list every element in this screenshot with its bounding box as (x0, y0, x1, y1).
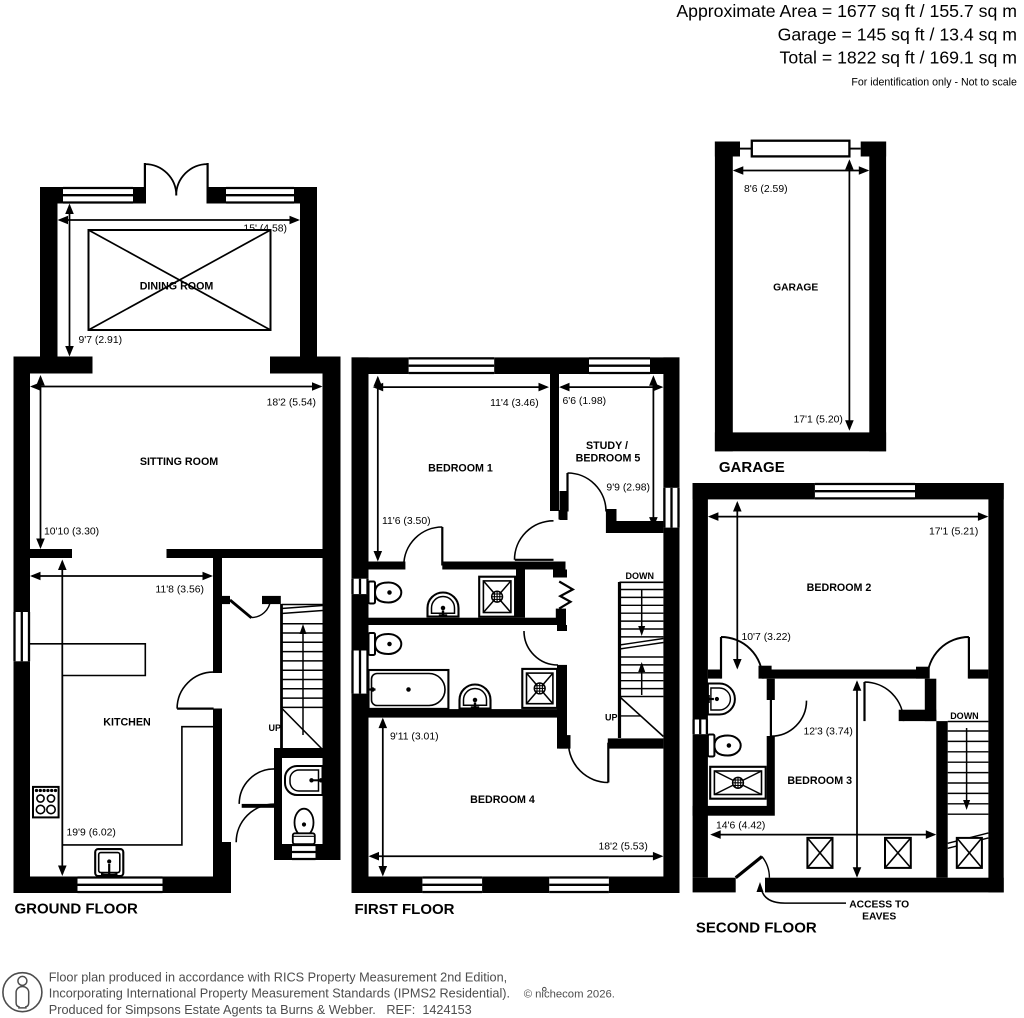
svg-text:14'6 (4.42): 14'6 (4.42) (716, 821, 765, 832)
svg-text:Approximate Area = 1677 sq ft: Approximate Area = 1677 sq ft / 155.7 sq… (676, 1, 1017, 21)
svg-text:BEDROOM 2: BEDROOM 2 (807, 582, 872, 594)
svg-text:STUDY /: STUDY / (586, 440, 628, 452)
svg-text:DOWN: DOWN (950, 711, 979, 721)
svg-text:9'9 (2.98): 9'9 (2.98) (606, 483, 650, 494)
svg-text:8'6 (2.59): 8'6 (2.59) (744, 184, 788, 195)
svg-text:FIRST FLOOR: FIRST FLOOR (355, 901, 455, 918)
svg-text:Garage = 145 sq ft / 13.4 sq m: Garage = 145 sq ft / 13.4 sq m (778, 24, 1017, 44)
svg-text:ACCESS TO: ACCESS TO (849, 900, 909, 911)
svg-text:12'3 (3.74): 12'3 (3.74) (804, 727, 853, 738)
svg-text:11'6 (3.50): 11'6 (3.50) (382, 516, 431, 527)
svg-text:For identification only - Not: For identification only - Not to scale (851, 77, 1017, 89)
svg-text:Produced for Simpsons Estate A: Produced for Simpsons Estate Agents ta B… (49, 1003, 472, 1017)
svg-text:BEDROOM 1: BEDROOM 1 (428, 463, 493, 475)
svg-text:19'9 (6.02): 19'9 (6.02) (67, 828, 116, 839)
svg-text:BEDROOM 3: BEDROOM 3 (787, 775, 852, 787)
svg-text:© nichecom 2026.: © nichecom 2026. (524, 989, 615, 1001)
svg-text:GARAGE: GARAGE (719, 459, 785, 476)
svg-text:UP: UP (268, 723, 281, 733)
svg-text:18'2 (5.53): 18'2 (5.53) (598, 842, 647, 853)
svg-text:SECOND FLOOR: SECOND FLOOR (696, 920, 817, 937)
svg-text:DINING ROOM: DINING ROOM (140, 281, 214, 293)
svg-text:Floor plan produced in accorda: Floor plan produced in accordance with R… (49, 970, 507, 984)
svg-text:GROUND FLOOR: GROUND FLOOR (15, 901, 138, 918)
svg-text:BEDROOM 5: BEDROOM 5 (576, 452, 641, 464)
svg-text:SITTING ROOM: SITTING ROOM (140, 456, 218, 468)
svg-text:17'1 (5.20): 17'1 (5.20) (794, 414, 843, 425)
svg-text:11'8 (3.56): 11'8 (3.56) (155, 585, 204, 596)
svg-text:EAVES: EAVES (862, 912, 896, 923)
svg-text:11'4 (3.46): 11'4 (3.46) (490, 398, 539, 409)
svg-text:10'7 (3.22): 10'7 (3.22) (742, 632, 791, 643)
svg-text:UP: UP (605, 713, 618, 723)
svg-text:9'7 (2.91): 9'7 (2.91) (79, 335, 123, 346)
svg-text:GARAGE: GARAGE (773, 283, 818, 294)
svg-text:KITCHEN: KITCHEN (103, 717, 151, 729)
svg-text:9'11 (3.01): 9'11 (3.01) (390, 732, 439, 743)
svg-text:DOWN: DOWN (626, 571, 655, 581)
svg-text:10'10 (3.30): 10'10 (3.30) (44, 527, 99, 538)
svg-text:BEDROOM 4: BEDROOM 4 (470, 794, 535, 806)
svg-text:Total = 1822 sq ft / 169.1 sq: Total = 1822 sq ft / 169.1 sq m (780, 48, 1017, 68)
svg-text:18'2 (5.54): 18'2 (5.54) (267, 398, 316, 409)
svg-text:17'1 (5.21): 17'1 (5.21) (929, 527, 978, 538)
svg-text:Incorporating International Pr: Incorporating International Property Mea… (49, 987, 510, 1001)
svg-text:6'6 (1.98): 6'6 (1.98) (563, 396, 607, 407)
